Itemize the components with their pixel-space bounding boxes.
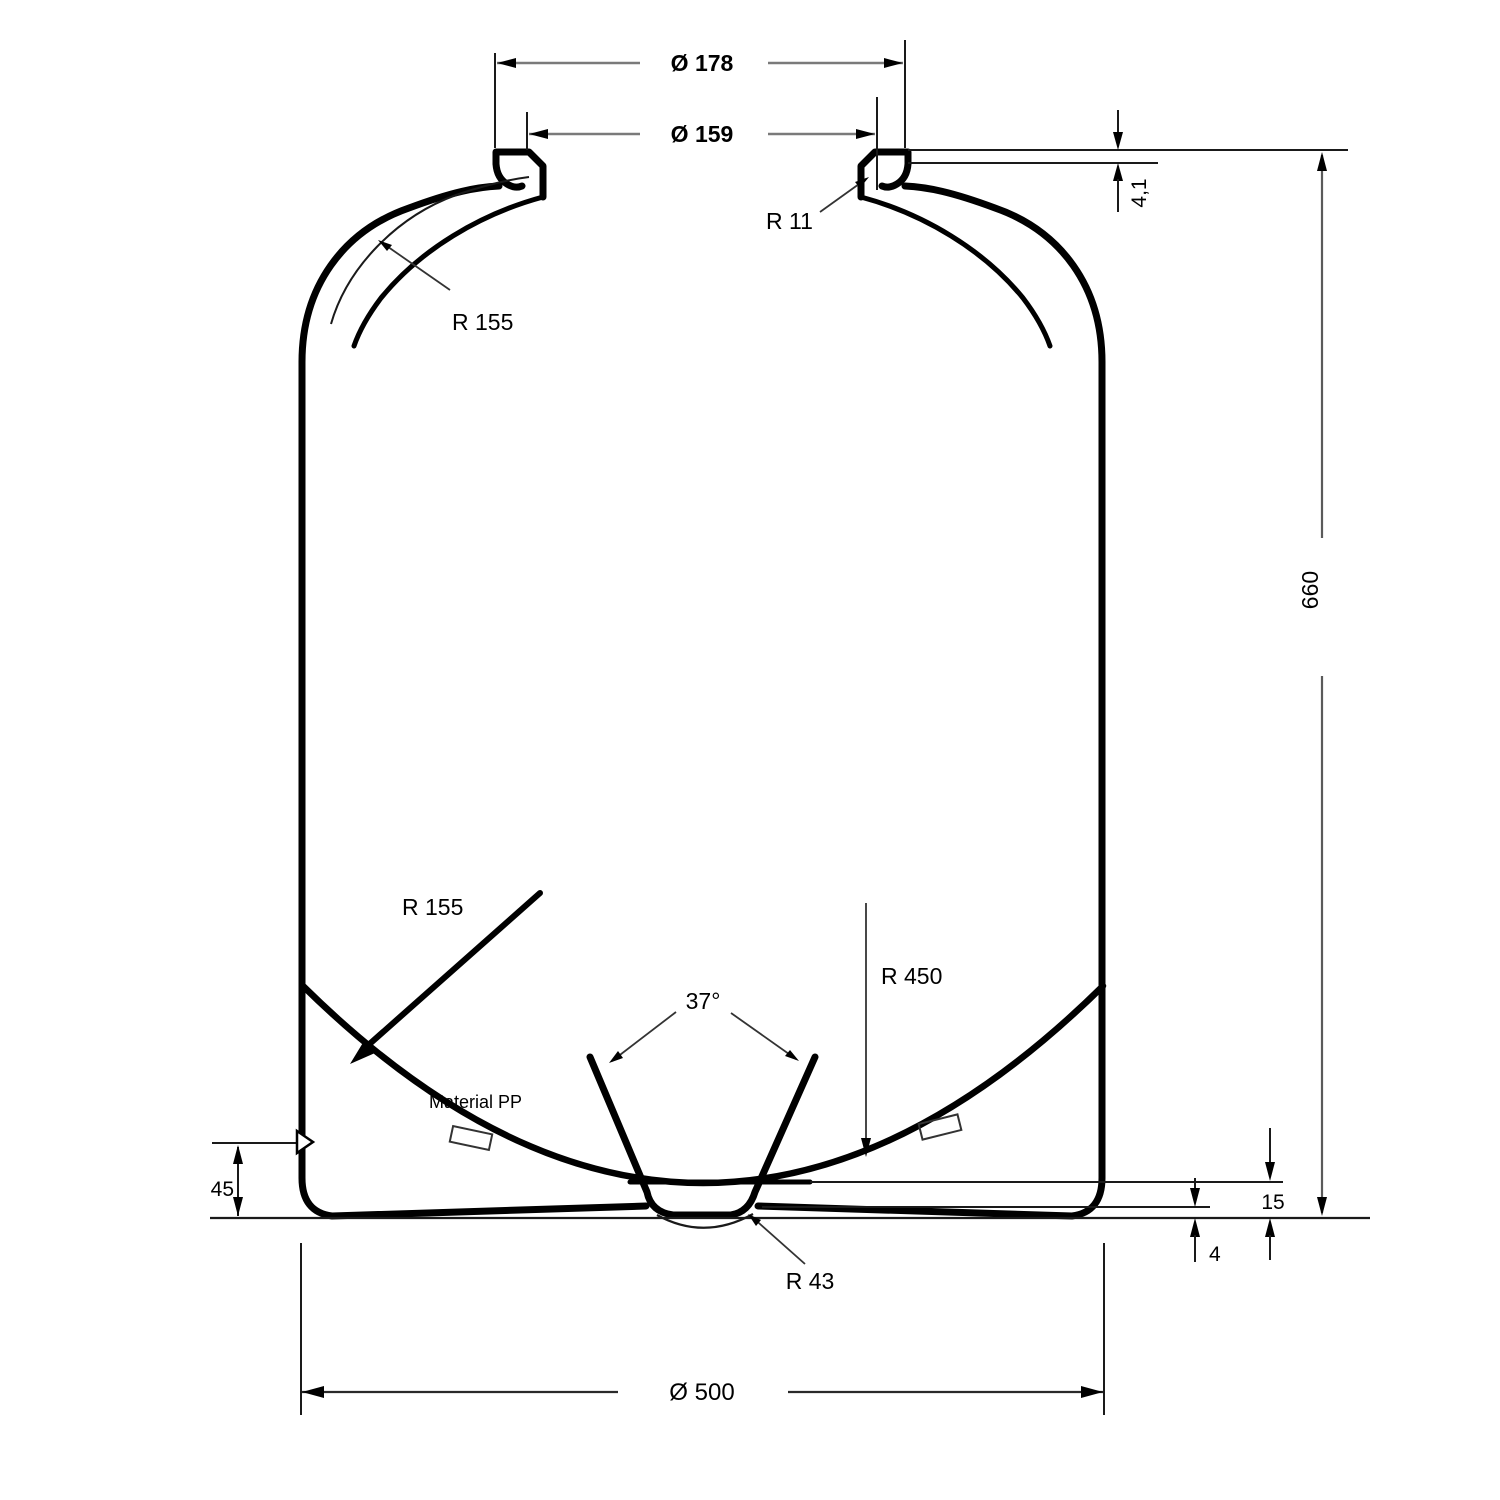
arrowhead bbox=[1113, 132, 1123, 150]
arrowhead bbox=[609, 1051, 623, 1063]
drawing-canvas: Ø 178 Ø 159 4,1 660 R 11 R 155 R 155 R 4… bbox=[0, 0, 1500, 1500]
arrowhead bbox=[884, 58, 903, 68]
dished-bottom-curve bbox=[303, 986, 1103, 1183]
arrowhead bbox=[1265, 1162, 1275, 1181]
dim-label-cup-depth: 15 bbox=[1261, 1191, 1284, 1214]
dim-label-cone-angle: 37° bbox=[686, 988, 721, 1014]
dim-label-body-dia: Ø 500 bbox=[669, 1379, 734, 1406]
leader-cone-angle-left bbox=[612, 1012, 676, 1061]
dim-label-neck-radius: R 11 bbox=[766, 208, 813, 234]
dim-label-dish-radius: R 450 bbox=[881, 963, 942, 989]
arrowhead bbox=[1317, 152, 1327, 171]
arrowhead bbox=[529, 129, 548, 139]
dim-label-foot-height: 45 bbox=[211, 1178, 234, 1201]
arrowhead bbox=[1190, 1218, 1200, 1237]
dim-label-lip-height: 4,1 bbox=[1128, 178, 1151, 207]
leader-cone-angle-right bbox=[731, 1013, 796, 1059]
arrowhead bbox=[1190, 1188, 1200, 1207]
arrowhead bbox=[1317, 1197, 1327, 1216]
material-note: Material PP bbox=[429, 1092, 522, 1112]
arrowhead bbox=[856, 129, 875, 139]
dim-label-overall-height: 660 bbox=[1297, 571, 1323, 609]
wall-section-marker-left bbox=[450, 1126, 492, 1150]
arrowhead bbox=[233, 1197, 243, 1216]
wall-section-marker-right bbox=[919, 1114, 962, 1139]
vessel-right-profile bbox=[758, 152, 1102, 1216]
arrowhead bbox=[497, 58, 516, 68]
arrowhead bbox=[302, 1386, 324, 1398]
dim-label-shoulder-radius: R 155 bbox=[452, 309, 513, 335]
arrowhead bbox=[1081, 1386, 1103, 1398]
drawing-sheet: Ø 178 Ø 159 4,1 660 R 11 R 155 R 155 R 4… bbox=[0, 0, 1500, 1500]
dim-label-base-clearance: 4 bbox=[1209, 1243, 1221, 1266]
dim-label-bottom-shoulder-radius: R 155 bbox=[402, 894, 463, 920]
dim-label-neck-inner-dia: Ø 159 bbox=[671, 121, 734, 147]
leader-cup-radius bbox=[751, 1216, 805, 1264]
neck-flange bbox=[496, 152, 543, 197]
arrowhead bbox=[378, 240, 392, 251]
arrowhead bbox=[1265, 1218, 1275, 1237]
center-cone-cup bbox=[590, 1057, 815, 1215]
dim-label-cup-radius: R 43 bbox=[786, 1268, 835, 1294]
arrowhead bbox=[1113, 163, 1123, 181]
dim-label-neck-outer-dia: Ø 178 bbox=[671, 50, 734, 76]
arrowhead bbox=[233, 1145, 243, 1164]
